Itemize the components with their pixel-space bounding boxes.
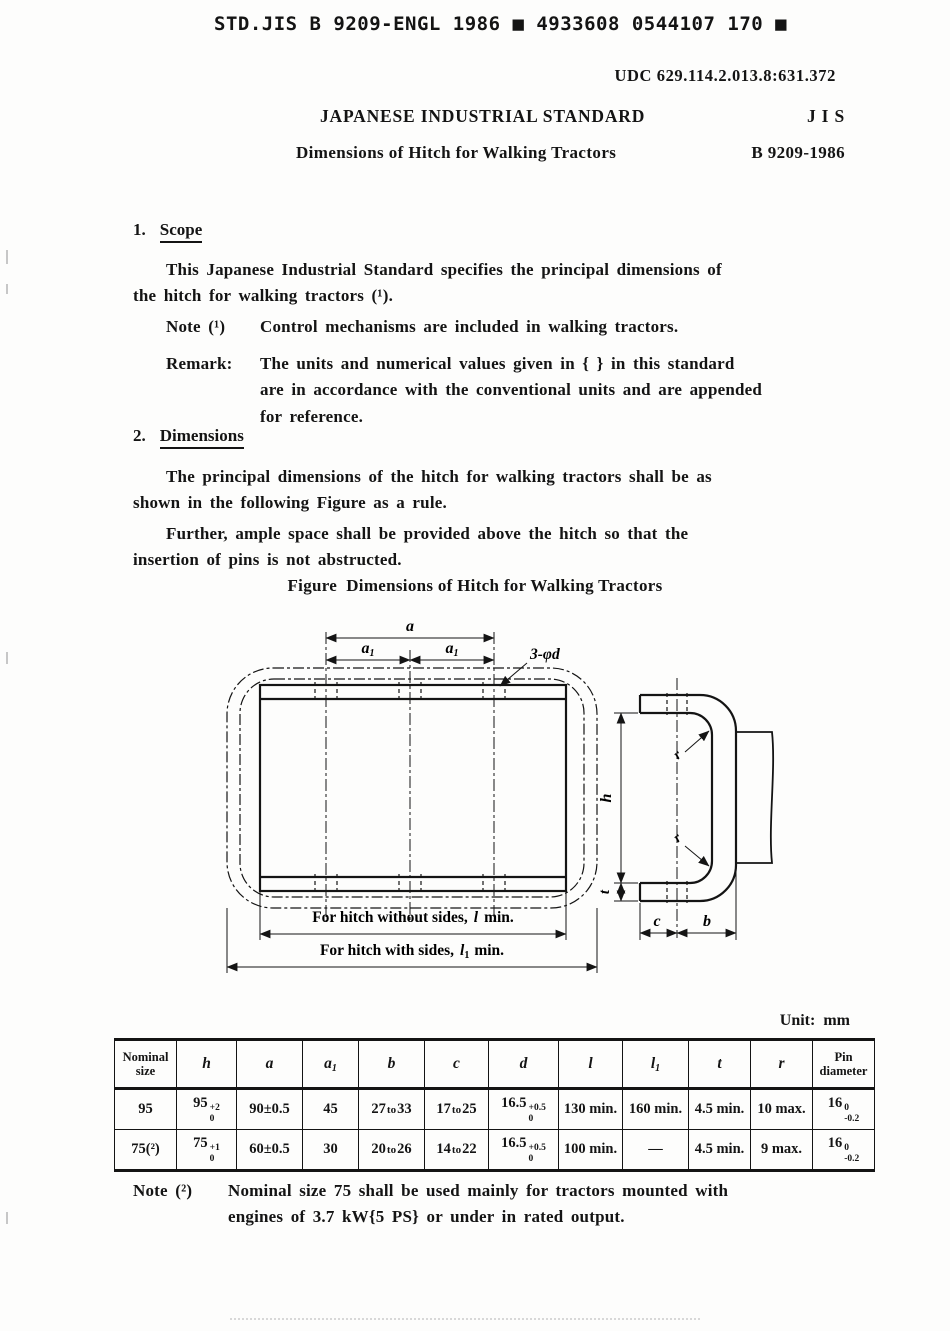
jis-mark: J I S: [807, 106, 845, 127]
cell-b: 20to26: [359, 1130, 425, 1171]
dim-a1-label: a1: [446, 640, 459, 659]
document-title-row: Dimensions of Hitch for Walking Tractors…: [296, 143, 845, 163]
col-nominal-size: Nominal size: [115, 1040, 177, 1089]
standard-title-row: JAPANESE INDUSTRIAL STANDARD J I S: [320, 106, 845, 127]
cell-nominal: 95: [115, 1089, 177, 1130]
dim-a1-label: a1: [362, 640, 375, 659]
col-l: l: [559, 1040, 623, 1089]
col-r: r: [751, 1040, 813, 1089]
cell-h: 75+10: [177, 1130, 237, 1171]
remark-line: for reference.: [260, 404, 866, 430]
document-page: { "page": { "scan_header": "STD.JIS B 92…: [0, 0, 950, 1331]
note-2-label: Note (²): [133, 1178, 228, 1231]
standard-title: JAPANESE INDUSTRIAL STANDARD: [320, 106, 645, 127]
paragraph-line: The principal dimensions of the hitch fo…: [133, 464, 833, 490]
side-view-mount-plate: [736, 732, 773, 863]
cell-r: 10 max.: [751, 1089, 813, 1130]
col-h: h: [177, 1040, 237, 1089]
table-row: 75(²) 75+10 60±0.5 30 20to26 14to22 16.5…: [115, 1130, 875, 1171]
dim-c-label: c: [653, 913, 660, 930]
cell-d: 16.5+0.50: [489, 1130, 559, 1171]
col-pin-diameter: Pin diameter: [813, 1040, 875, 1089]
cell-c: 14to22: [425, 1130, 489, 1171]
col-a1: a1: [303, 1040, 359, 1089]
paragraph-line: This Japanese Industrial Standard specif…: [133, 257, 833, 283]
cell-l1: 160 min.: [623, 1089, 689, 1130]
paragraph-line: shown in the following Figure as a rule.: [133, 490, 833, 516]
note-1-label: Note (¹): [166, 314, 260, 340]
dimensions-paragraph-2: Further, ample space shall be provided a…: [133, 521, 833, 574]
cell-a: 60±0.5: [237, 1130, 303, 1171]
section-title: Scope: [160, 220, 203, 243]
remark-line: The units and numerical values given in …: [260, 351, 866, 377]
section-dimensions-heading: 2. Dimensions: [133, 426, 244, 449]
front-view-center-lines: [326, 632, 494, 922]
dim-r-label: r: [671, 747, 685, 762]
front-view-phantom-sides: [227, 668, 597, 908]
dimensions-paragraph-1: The principal dimensions of the hitch fo…: [133, 464, 833, 517]
cell-a1: 45: [303, 1089, 359, 1130]
remark-label: Remark:: [166, 351, 260, 430]
col-b: b: [359, 1040, 425, 1089]
cell-pin: 160-0.2: [813, 1130, 875, 1171]
cell-r: 9 max.: [751, 1130, 813, 1171]
note-2-line: engines of 3.7 kW{5 PS} or under in rate…: [228, 1204, 838, 1230]
note-2-line: Nominal size 75 shall be used mainly for…: [228, 1178, 838, 1204]
paragraph-line: the hitch for walking tractors (¹).: [133, 283, 833, 309]
document-number: B 9209-1986: [751, 143, 845, 163]
figure-drawing: a a1 a1 3-φd For hitch without sides,lmi…: [180, 600, 950, 1005]
dim-r-label: r: [671, 830, 685, 845]
note-2-text: Nominal size 75 shall be used mainly for…: [228, 1178, 838, 1231]
hole-callout-label: 3-φd: [529, 646, 560, 663]
cell-b: 27to33: [359, 1089, 425, 1130]
side-view-profile: [640, 695, 736, 901]
cell-nominal: 75(²): [115, 1130, 177, 1171]
hitch-without-sides-label: For hitch without sides,lmin.: [312, 909, 514, 926]
document-title: Dimensions of Hitch for Walking Tractors: [296, 143, 616, 163]
cell-a: 90±0.5: [237, 1089, 303, 1130]
section-number: 1.: [133, 220, 146, 243]
dim-a-label: a: [406, 618, 414, 635]
hitch-with-sides-label: For hitch with sides,l1min.: [320, 942, 504, 961]
cell-a1: 30: [303, 1130, 359, 1171]
scan-artifact: [6, 652, 8, 664]
scope-paragraph: This Japanese Industrial Standard specif…: [133, 257, 833, 310]
paragraph-line: insertion of pins is not abstructed.: [133, 547, 833, 573]
col-t: t: [689, 1040, 751, 1089]
cell-l: 130 min.: [559, 1089, 623, 1130]
section-number: 2.: [133, 426, 146, 449]
col-d: d: [489, 1040, 559, 1089]
note-2: Note (²) Nominal size 75 shall be used m…: [133, 1178, 838, 1231]
cell-t: 4.5 min.: [689, 1130, 751, 1171]
remark-block: Remark: The units and numerical values g…: [166, 351, 866, 430]
side-view-dimension-lines: [614, 713, 736, 940]
unit-label: Unit: mm: [780, 1012, 850, 1030]
section-title: Dimensions: [160, 426, 244, 449]
udc-number: UDC 629.114.2.013.8:631.372: [614, 66, 836, 86]
cell-l: 100 min.: [559, 1130, 623, 1171]
dim-b-label: b: [703, 913, 711, 930]
paragraph-line: Further, ample space shall be provided a…: [133, 521, 833, 547]
table-header-row: Nominal size h a a1 b c d l l1 t r Pin d…: [115, 1040, 875, 1089]
col-l1: l1: [623, 1040, 689, 1089]
dim-h-label: h: [598, 793, 615, 802]
section-scope-heading: 1. Scope: [133, 220, 202, 243]
cell-l1: —: [623, 1130, 689, 1171]
cell-d: 16.5+0.50: [489, 1089, 559, 1130]
cell-h: 95+20: [177, 1089, 237, 1130]
note-1: Note (¹) Control mechanisms are included…: [166, 314, 866, 340]
scan-artifact: [6, 284, 8, 294]
scan-code-header: STD.JIS B 9209-ENGL 1986 ■ 4933608 05441…: [214, 13, 787, 35]
scan-artifact: [6, 250, 8, 264]
remark-line: are in accordance with the conventional …: [260, 377, 866, 403]
remark-text: The units and numerical values given in …: [260, 351, 866, 430]
scan-artifact: [6, 1212, 8, 1224]
cell-c: 17to25: [425, 1089, 489, 1130]
cell-t: 4.5 min.: [689, 1089, 751, 1130]
cell-pin: 160-0.2: [813, 1089, 875, 1130]
dim-t-label: t: [597, 889, 613, 894]
col-c: c: [425, 1040, 489, 1089]
scan-noise-row: [230, 1318, 700, 1320]
front-view-frame: [260, 685, 566, 891]
table-row: 95 95+20 90±0.5 45 27to33 17to25 16.5+0.…: [115, 1089, 875, 1130]
dimension-table: Nominal size h a a1 b c d l l1 t r Pin d…: [114, 1038, 875, 1172]
figure-caption: Figure Dimensions of Hitch for Walking T…: [0, 576, 950, 596]
col-a: a: [237, 1040, 303, 1089]
note-1-text: Control mechanisms are included in walki…: [260, 314, 866, 340]
